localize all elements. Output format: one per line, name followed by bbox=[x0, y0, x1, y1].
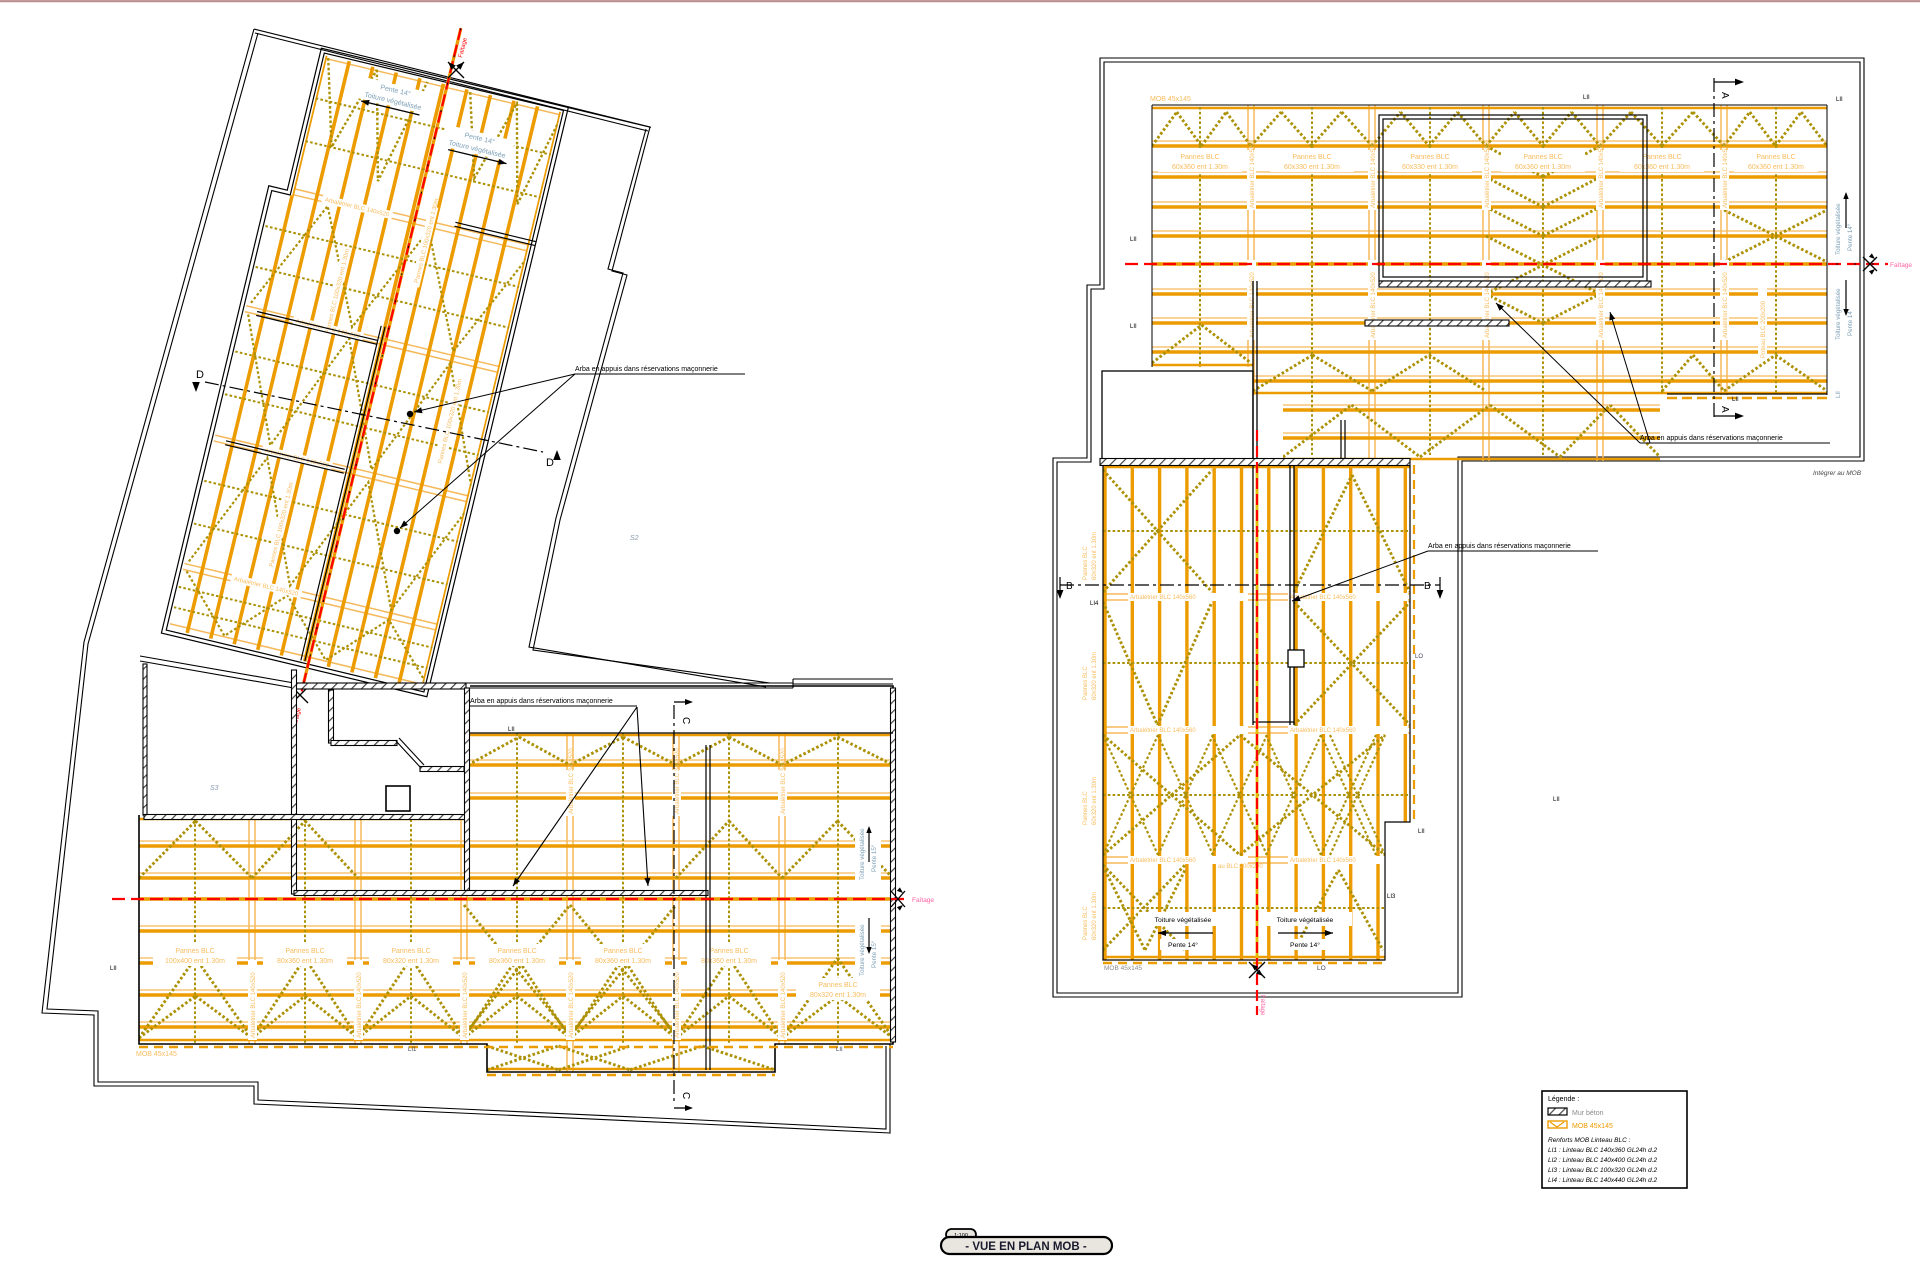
svg-text:Pannes BLC: Pannes BLC bbox=[1083, 666, 1089, 700]
svg-text:LII: LII bbox=[1836, 97, 1843, 103]
svg-text:- VUE EN PLAN MOB -: - VUE EN PLAN MOB - bbox=[965, 1241, 1087, 1253]
svg-text:Arbalétrier BLC 340x520: Arbalétrier BLC 340x520 bbox=[675, 748, 681, 814]
svg-text:Pannes BLC: Pannes BLC bbox=[603, 948, 642, 955]
svg-text:D: D bbox=[546, 457, 554, 469]
svg-text:Pannes BLC: Pannes BLC bbox=[285, 948, 324, 955]
svg-text:Arba en appuis dans réservatio: Arba en appuis dans réservations maçonne… bbox=[1428, 543, 1571, 550]
svg-text:C: C bbox=[680, 1092, 691, 1099]
svg-text:Arbalétrier BLC 140x520: Arbalétrier BLC 140x520 bbox=[1723, 272, 1729, 338]
svg-text:MOB 45x145: MOB 45x145 bbox=[1150, 96, 1191, 103]
svg-text:Pannes BLC: Pannes BLC bbox=[709, 948, 748, 955]
svg-text:80x320 ent 1.30m: 80x320 ent 1.30m bbox=[810, 992, 866, 999]
svg-text:Pente 15°: Pente 15° bbox=[871, 844, 878, 872]
svg-text:Faîtage: Faîtage bbox=[912, 897, 934, 904]
svg-text:Faîtage: Faîtage bbox=[1890, 262, 1912, 269]
svg-text:Pente 15°: Pente 15° bbox=[871, 940, 878, 968]
svg-text:100x400 ent 1.30m: 100x400 ent 1.30m bbox=[165, 958, 225, 965]
svg-text:Pannes BLC: Pannes BLC bbox=[175, 948, 214, 955]
svg-text:Arbalétrier BLC 140x520: Arbalétrier BLC 140x520 bbox=[357, 972, 363, 1038]
svg-text:Arbalétrier BLC 140x520: Arbalétrier BLC 140x520 bbox=[1485, 142, 1491, 208]
svg-text:Arbalétrier BLC 140x560: Arbalétrier BLC 140x560 bbox=[1290, 728, 1356, 734]
svg-text:Pannes BLC: Pannes BLC bbox=[1292, 154, 1331, 161]
svg-text:LI3 : Linteau BLC 100x320 GL24: LI3 : Linteau BLC 100x320 GL24h d.2 bbox=[1548, 1167, 1658, 1174]
svg-text:Arba en appuis dans réservatio: Arba en appuis dans réservations maçonne… bbox=[1640, 435, 1783, 442]
svg-text:Arbalétrier BLC 140x560: Arbalétrier BLC 140x560 bbox=[1130, 858, 1196, 864]
svg-text:Arbalétrier BLC 140x560: Arbalétrier BLC 140x560 bbox=[1130, 595, 1196, 601]
svg-text:LII: LII bbox=[508, 727, 515, 733]
svg-text:LII: LII bbox=[1130, 237, 1137, 243]
svg-text:LII: LII bbox=[1732, 397, 1739, 403]
svg-text:Pannes BLC: Pannes BLC bbox=[1083, 546, 1089, 580]
svg-text:Pente 14°: Pente 14° bbox=[1168, 941, 1198, 949]
svg-text:Pannes BLC: Pannes BLC bbox=[391, 948, 430, 955]
svg-text:D: D bbox=[196, 369, 204, 381]
svg-text:Toiture végétalisée: Toiture végétalisée bbox=[1277, 917, 1334, 924]
svg-text:MOB 45x145: MOB 45x145 bbox=[1572, 1123, 1613, 1130]
svg-text:Pente 14°: Pente 14° bbox=[1847, 308, 1854, 336]
svg-text:Pannes BLC: Pannes BLC bbox=[1523, 154, 1562, 161]
svg-text:Arbalétrier BLC 340x520: Arbalétrier BLC 340x520 bbox=[781, 748, 787, 814]
svg-text:Pannes BLC: Pannes BLC bbox=[818, 982, 857, 989]
svg-text:Pannes BLC: Pannes BLC bbox=[1642, 154, 1681, 161]
svg-text:LI2 : Linteau BLC 140x400 GL24: LI2 : Linteau BLC 140x400 GL24h d.2 bbox=[1548, 1157, 1658, 1164]
svg-text:Arbalétrier BLC 140x560: Arbalétrier BLC 140x560 bbox=[1130, 728, 1196, 734]
svg-text:LI1 : Linteau BLC 140x360 GL24: LI1 : Linteau BLC 140x360 GL24h d.2 bbox=[1548, 1147, 1658, 1154]
svg-text:LII: LII bbox=[836, 1047, 843, 1053]
svg-text:60x360 ent 1.30m: 60x360 ent 1.30m bbox=[1748, 164, 1804, 171]
svg-text:Pente 14°: Pente 14° bbox=[1847, 223, 1854, 251]
svg-text:Pannes BLC: Pannes BLC bbox=[1180, 154, 1219, 161]
svg-text:Pannes BLC: Pannes BLC bbox=[1083, 906, 1089, 940]
svg-text:Toiture végétalisée: Toiture végétalisée bbox=[1155, 917, 1212, 924]
svg-text:Arba en appuis dans réservatio: Arba en appuis dans réservations maçonne… bbox=[575, 366, 718, 373]
svg-text:Arbalétrier BLC 140x520: Arbalétrier BLC 140x520 bbox=[1599, 142, 1605, 208]
svg-text:LII: LII bbox=[1583, 95, 1590, 101]
svg-text:B: B bbox=[1066, 581, 1073, 592]
svg-text:60x320 ent 1.30m: 60x320 ent 1.30m bbox=[1092, 652, 1098, 700]
svg-text:80x360 ent 1.30m: 80x360 ent 1.30m bbox=[595, 958, 651, 965]
svg-text:60x330 ent 1.30m: 60x330 ent 1.30m bbox=[1284, 164, 1340, 171]
svg-text:Toiture végétalisée: Toiture végétalisée bbox=[859, 924, 866, 976]
svg-text:Pannes BLC: Pannes BLC bbox=[1083, 791, 1089, 825]
svg-text:LI4 : Linteau BLC 140x440 GL24: LI4 : Linteau BLC 140x440 GL24h d.2 bbox=[1548, 1177, 1658, 1184]
svg-text:Pannes BLC: Pannes BLC bbox=[1410, 154, 1449, 161]
svg-text:MOB 45x145: MOB 45x145 bbox=[136, 1051, 177, 1058]
svg-text:LO: LO bbox=[1317, 965, 1326, 972]
svg-text:60x320 ent 1.30m: 60x320 ent 1.30m bbox=[1092, 892, 1098, 940]
svg-text:80x360 ent 1.30m: 80x360 ent 1.30m bbox=[277, 958, 333, 965]
svg-text:LI4: LI4 bbox=[1090, 601, 1099, 607]
svg-text:LO: LO bbox=[1415, 654, 1423, 660]
svg-text:LI3: LI3 bbox=[1387, 894, 1396, 900]
svg-text:Arba en appuis dans réservatio: Arba en appuis dans réservations maçonne… bbox=[470, 698, 613, 705]
svg-text:Arbalétrier BLC 140x520: Arbalétrier BLC 140x520 bbox=[569, 972, 575, 1038]
svg-text:Mur béton: Mur béton bbox=[1572, 1110, 1604, 1117]
svg-text:B: B bbox=[1424, 581, 1431, 592]
svg-text:LI1: LI1 bbox=[408, 1047, 417, 1053]
svg-text:60x360 ent 1.30m: 60x360 ent 1.30m bbox=[1172, 164, 1228, 171]
svg-text:LII: LII bbox=[1835, 391, 1842, 398]
svg-text:Pannes BLC: Pannes BLC bbox=[1756, 154, 1795, 161]
svg-text:Légende :: Légende : bbox=[1548, 1096, 1579, 1103]
svg-text:Renforts MOB Linteau BLC :: Renforts MOB Linteau BLC : bbox=[1548, 1137, 1631, 1144]
svg-text:A: A bbox=[1719, 406, 1730, 413]
svg-text:Arbalétrier BLC 140x520: Arbalétrier BLC 140x520 bbox=[1371, 142, 1377, 208]
svg-text:60x320 ent 1.30m: 60x320 ent 1.30m bbox=[1092, 777, 1098, 825]
svg-text:Toiture végétalisée: Toiture végétalisée bbox=[859, 828, 866, 880]
svg-text:Faîtage: Faîtage bbox=[1259, 995, 1265, 1016]
svg-text:80x360 ent 1.30m: 80x360 ent 1.30m bbox=[489, 958, 545, 965]
svg-text:Toiture végétalisée: Toiture végétalisée bbox=[1835, 288, 1842, 340]
svg-text:Arbalétrier BLC 140x520: Arbalétrier BLC 140x520 bbox=[251, 972, 257, 1038]
svg-text:Arbalétrier BLC 140x520: Arbalétrier BLC 140x520 bbox=[1250, 142, 1256, 208]
svg-text:S2: S2 bbox=[630, 535, 639, 542]
svg-text:Toiture végétalisée: Toiture végétalisée bbox=[1835, 203, 1842, 255]
svg-text:Pannes BLC: Pannes BLC bbox=[497, 948, 536, 955]
svg-text:Arbalétrier BLC 140x520: Arbalétrier BLC 140x520 bbox=[1371, 272, 1377, 338]
svg-text:Intégrer au MOB: Intégrer au MOB bbox=[1813, 470, 1862, 477]
svg-text:LII: LII bbox=[1553, 797, 1560, 803]
svg-text:Arbalétrier BLC 140x520: Arbalétrier BLC 140x520 bbox=[675, 972, 681, 1038]
svg-text:C: C bbox=[680, 717, 691, 724]
svg-text:Arbalétrier BLC 140x520: Arbalétrier BLC 140x520 bbox=[463, 972, 469, 1038]
svg-text:Arbalétrier BLC 140x520: Arbalétrier BLC 140x520 bbox=[781, 972, 787, 1038]
svg-text:60x360 ent 1.30m: 60x360 ent 1.30m bbox=[1515, 164, 1571, 171]
svg-text:MOB 45x145: MOB 45x145 bbox=[1104, 965, 1142, 972]
svg-text:60x320 ent 1.30m: 60x320 ent 1.30m bbox=[1092, 532, 1098, 580]
svg-text:80x320 ent 1.30m: 80x320 ent 1.30m bbox=[383, 958, 439, 965]
svg-text:A: A bbox=[1719, 92, 1730, 99]
svg-text:S3: S3 bbox=[210, 785, 219, 792]
svg-text:60x330 ent 1.30m: 60x330 ent 1.30m bbox=[1402, 164, 1458, 171]
svg-text:Poteau BLC 200x200: Poteau BLC 200x200 bbox=[1761, 300, 1767, 358]
svg-text:LII: LII bbox=[110, 966, 117, 972]
svg-text:Arbalétrier BLC 140x520: Arbalétrier BLC 140x520 bbox=[1723, 142, 1729, 208]
svg-text:LII: LII bbox=[1418, 829, 1425, 835]
svg-text:Pente 14°: Pente 14° bbox=[1290, 941, 1320, 949]
svg-text:Arbalétrier BLC 140x560: Arbalétrier BLC 140x560 bbox=[1290, 858, 1356, 864]
svg-text:LII: LII bbox=[1130, 324, 1137, 330]
